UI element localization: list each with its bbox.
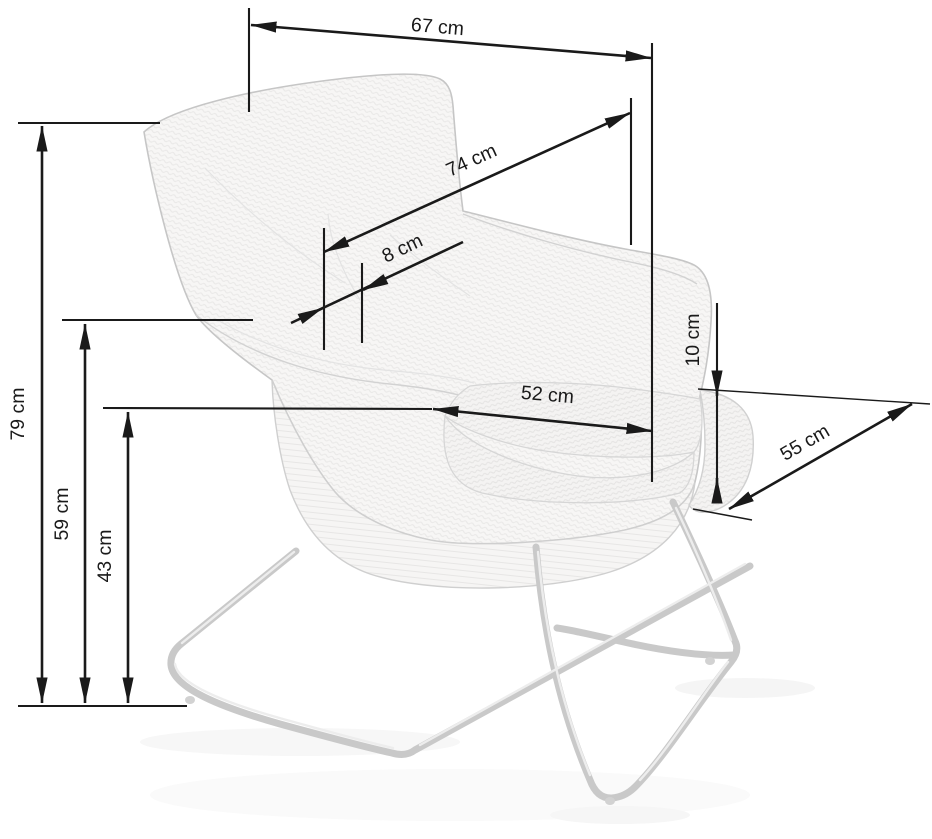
chair-illustration [140, 74, 815, 824]
dimension-label-67cm: 67 cm [410, 14, 465, 40]
dimension-label-55cm: 55 cm [777, 420, 834, 466]
dimension-label-79cm: 79 cm [7, 387, 29, 440]
chair-shell [144, 74, 711, 543]
foot-cap [605, 797, 615, 805]
dimension-label-59cm: 59 cm [51, 487, 73, 540]
foot-cap [705, 657, 715, 665]
dimension-armrest-height: 59 cm [51, 320, 253, 703]
foot-cap [185, 696, 195, 704]
dimension-label-43cm: 43 cm [94, 529, 116, 582]
diagram-canvas: 67 cm 74 cm 8 cm 52 cm 10 cm 55 cm [0, 0, 932, 839]
chair-dimension-diagram: 67 cm 74 cm 8 cm 52 cm 10 cm 55 cm [0, 0, 932, 839]
dimension-label-10cm: 10 cm [682, 313, 704, 366]
dimension-base-depth: 55 cm [729, 404, 912, 509]
floor-reflection [140, 678, 815, 824]
dimension-seat-height: 43 cm [94, 412, 128, 703]
dimension-label-52cm: 52 cm [520, 382, 575, 408]
